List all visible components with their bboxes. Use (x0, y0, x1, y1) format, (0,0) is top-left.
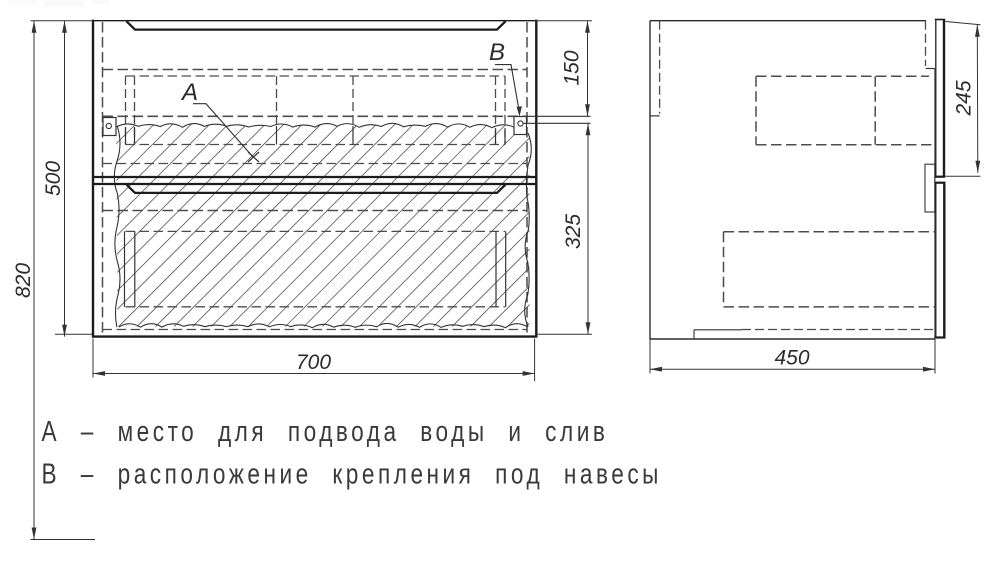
svg-text:А – место для подвода воды и с: А – место для подвода воды и слив (42, 414, 609, 447)
svg-text:700: 700 (296, 351, 331, 374)
svg-text:325: 325 (562, 214, 585, 249)
svg-text:В – расположение крепления под: В – расположение крепления под навесы (42, 457, 662, 490)
svg-text:820: 820 (12, 263, 35, 298)
svg-text:245: 245 (953, 80, 976, 116)
svg-text:А: А (180, 79, 198, 106)
svg-text:150: 150 (561, 50, 584, 85)
svg-text:В: В (489, 39, 505, 66)
svg-text:500: 500 (42, 161, 65, 196)
svg-text:450: 450 (775, 347, 810, 370)
